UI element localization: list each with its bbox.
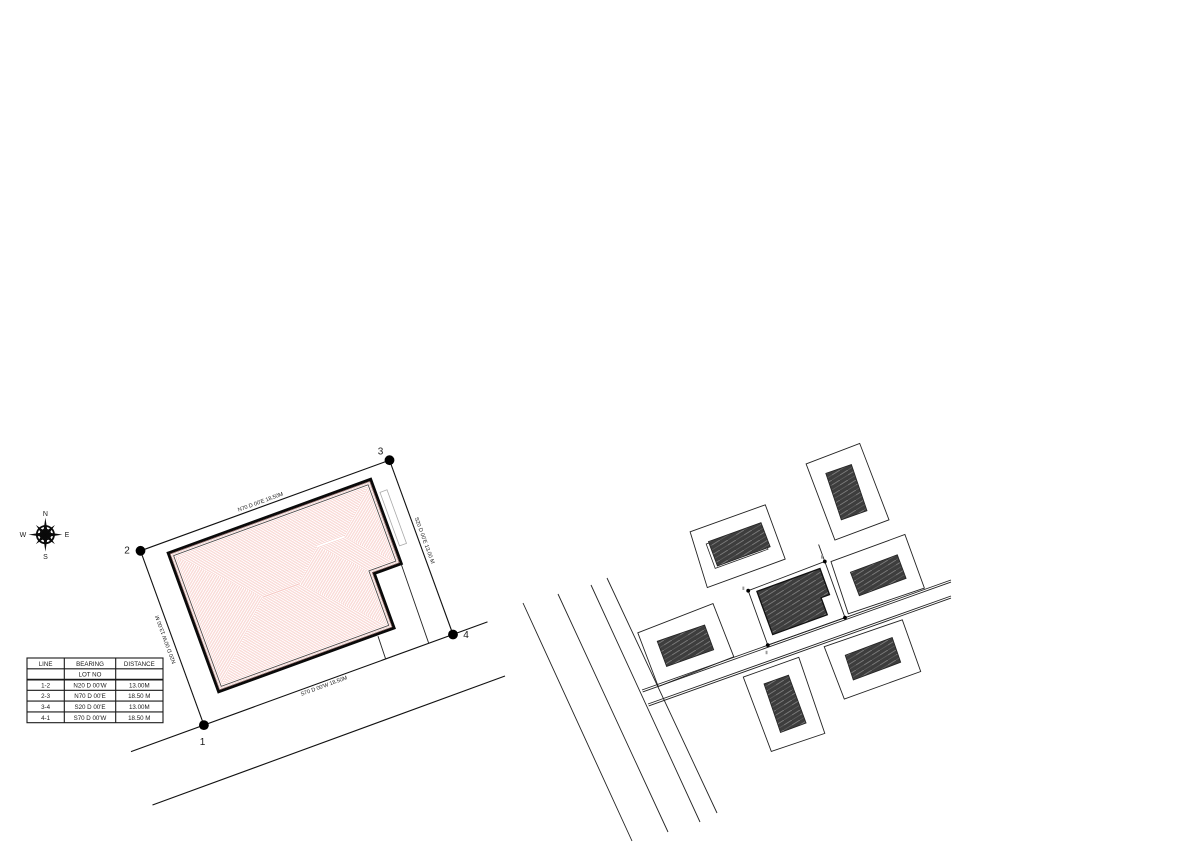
svg-text:1: 1 — [200, 737, 206, 748]
svg-text:BEARING: BEARING — [76, 661, 104, 668]
svg-text:E: E — [65, 532, 70, 539]
svg-text:N20 D 00'W: N20 D 00'W — [73, 682, 106, 689]
svg-text:18.50 M: 18.50 M — [128, 715, 150, 722]
svg-text:13.00M: 13.00M — [129, 682, 150, 689]
svg-text:13.00M: 13.00M — [129, 704, 150, 711]
svg-text:3: 3 — [378, 447, 384, 458]
svg-text:3-4: 3-4 — [41, 704, 51, 711]
svg-text:1-2: 1-2 — [41, 682, 51, 689]
svg-text:N70 D 00'E: N70 D 00'E — [74, 693, 105, 700]
svg-text:LOT NO: LOT NO — [79, 672, 102, 679]
svg-text:LINE: LINE — [39, 661, 53, 668]
svg-text:DISTANCE: DISTANCE — [124, 661, 155, 668]
svg-text:4-1: 4-1 — [41, 715, 51, 722]
svg-text:S: S — [43, 554, 48, 561]
svg-text:N: N — [43, 511, 48, 518]
svg-text:2-3: 2-3 — [41, 693, 51, 700]
svg-text:S70 D 00'W: S70 D 00'W — [74, 715, 107, 722]
svg-text:4: 4 — [463, 630, 469, 641]
svg-text:W: W — [20, 532, 27, 539]
svg-text:18.50 M: 18.50 M — [128, 693, 150, 700]
svg-text:S20 D 00'E: S20 D 00'E — [74, 704, 105, 711]
svg-text:2: 2 — [124, 546, 130, 557]
